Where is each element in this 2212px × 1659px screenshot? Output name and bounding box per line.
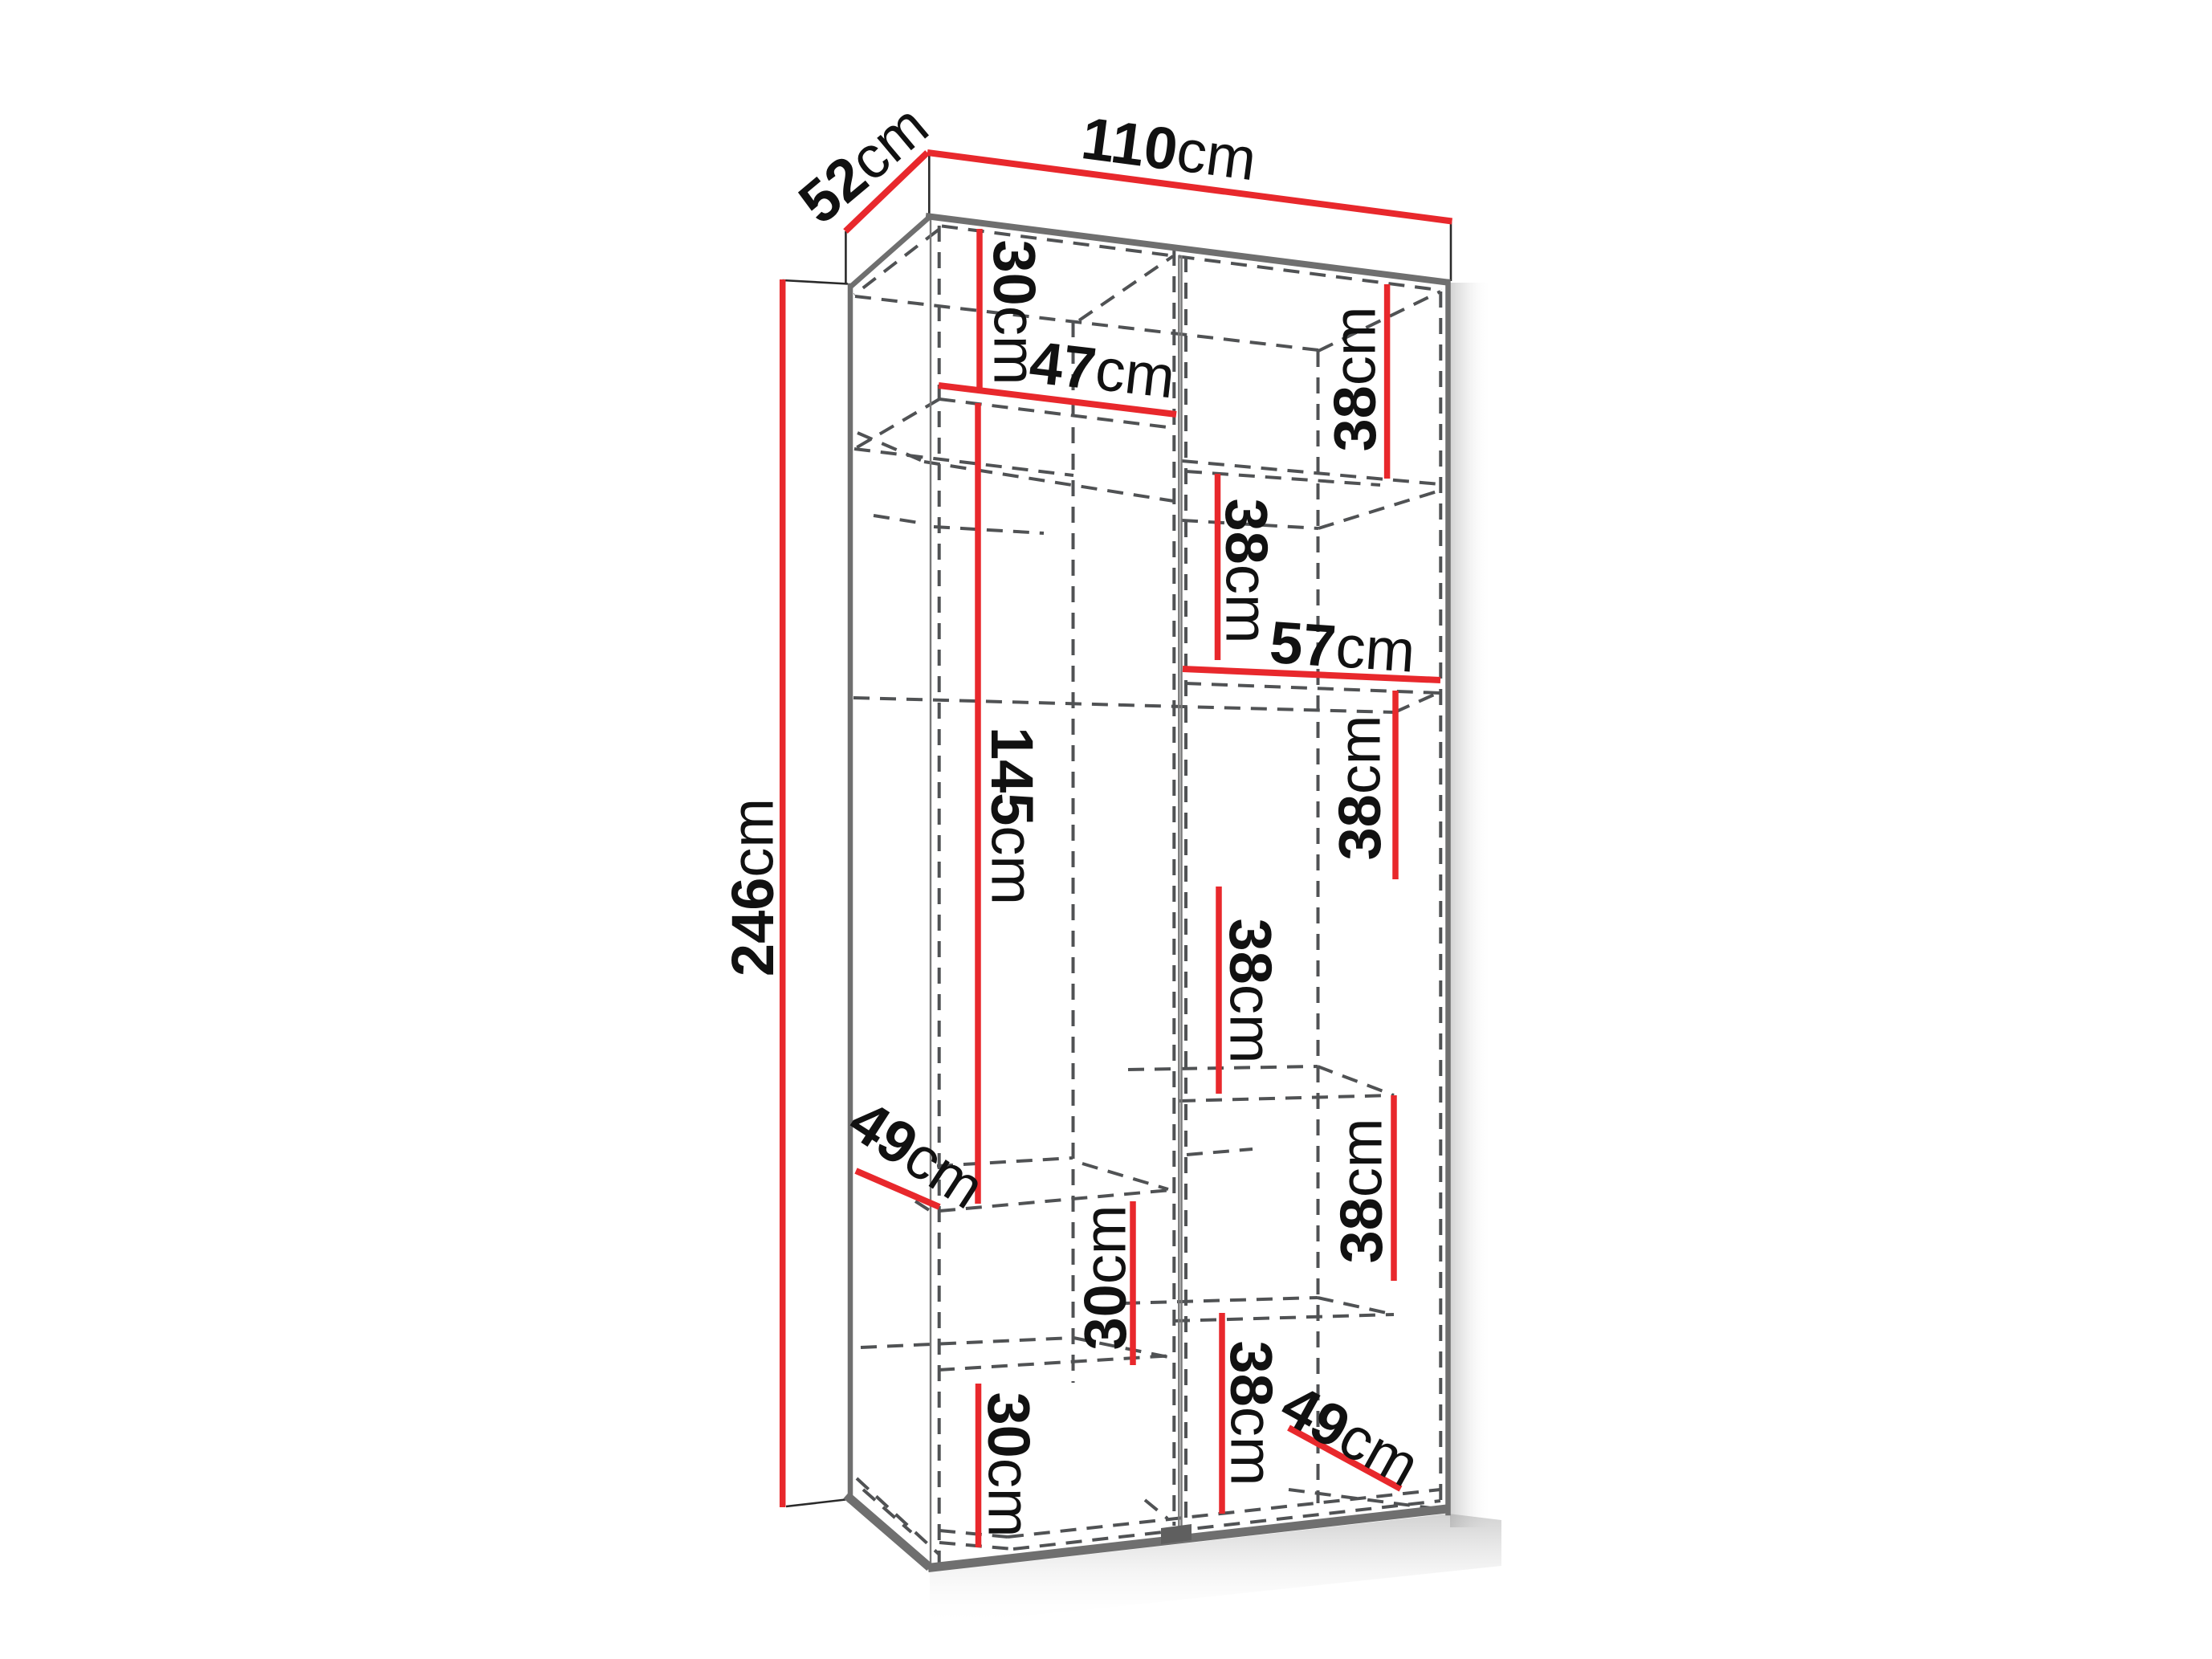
svg-text:246cm: 246cm	[719, 798, 786, 976]
svg-text:30cm: 30cm	[976, 1392, 1043, 1538]
svg-text:38cm: 38cm	[1219, 1341, 1285, 1486]
svg-text:38cm: 38cm	[1218, 919, 1285, 1064]
svg-text:30cm: 30cm	[1072, 1205, 1139, 1351]
svg-text:145cm: 145cm	[980, 727, 1046, 905]
svg-text:57cm: 57cm	[1268, 608, 1417, 684]
svg-text:38cm: 38cm	[1326, 715, 1393, 861]
svg-text:38cm: 38cm	[1328, 1119, 1395, 1264]
svg-text:38cm: 38cm	[1214, 499, 1281, 644]
svg-text:38cm: 38cm	[1322, 307, 1388, 452]
